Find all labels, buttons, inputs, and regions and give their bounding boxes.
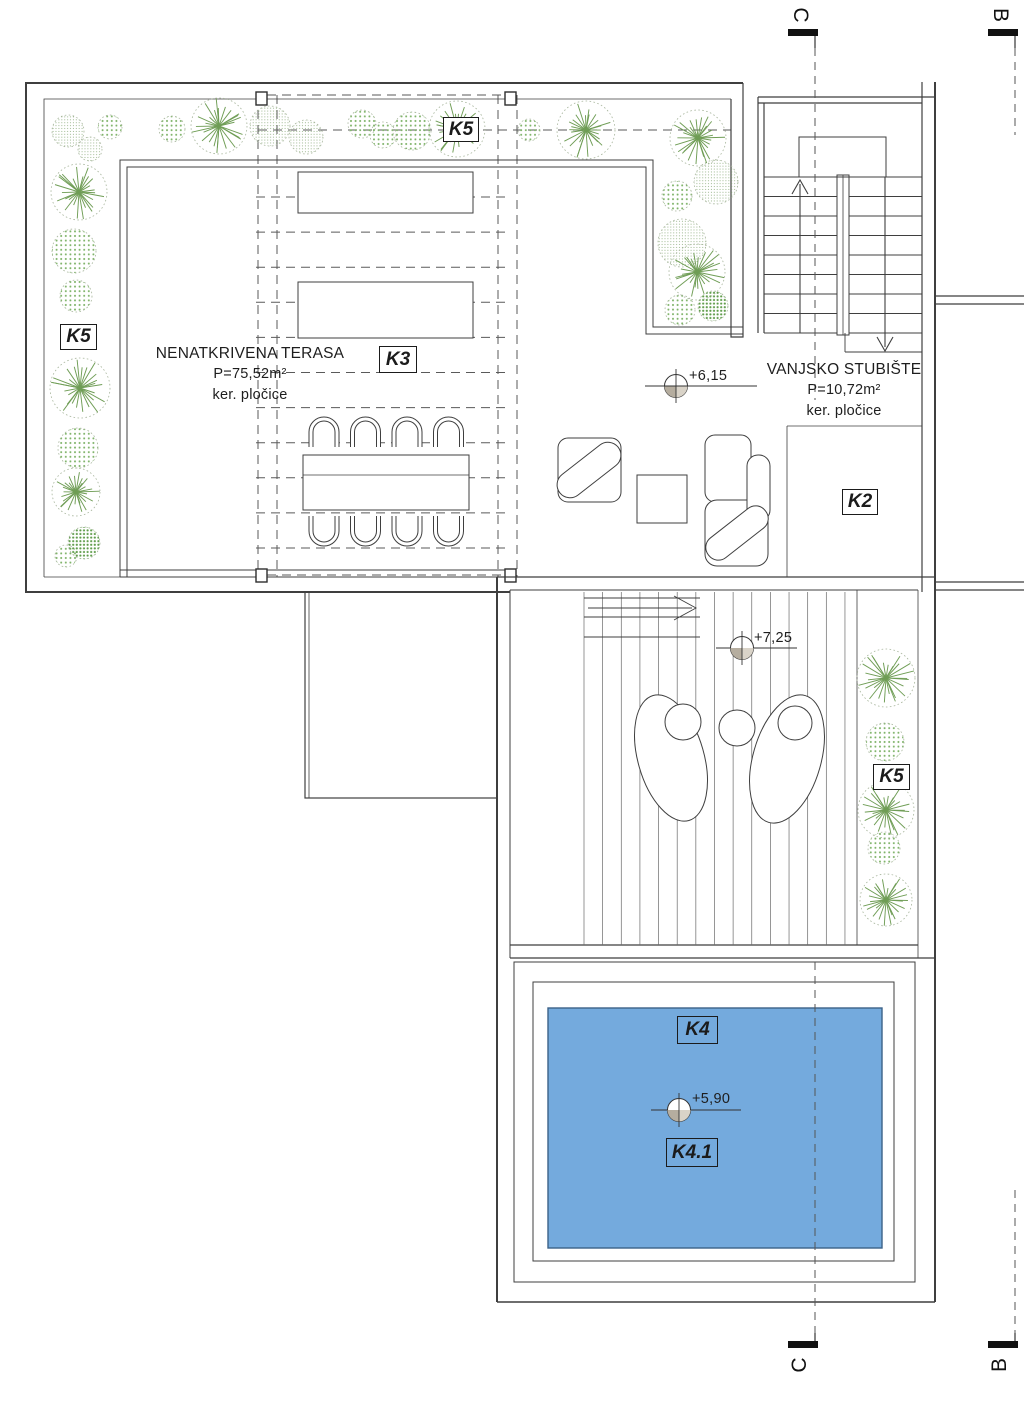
label-k3: K3: [379, 346, 417, 373]
planter-box: [298, 282, 473, 338]
side-table: [719, 710, 755, 746]
elevation-text-corridor: +6,15: [689, 368, 727, 384]
coffee-table: [637, 475, 687, 523]
dining-table: [303, 455, 469, 510]
section-line-b: [988, 29, 1018, 1348]
dining-set: [303, 417, 469, 546]
up-arrow: [792, 180, 808, 333]
sofa-seat: [705, 435, 751, 502]
planter-box: [298, 172, 473, 213]
pergola-planters: [298, 172, 473, 338]
section-label-b-top: B: [987, 1, 1013, 29]
lower-roof: [305, 592, 497, 798]
staircase-area: P=10,72m²: [758, 380, 930, 401]
sun-lounger-left: [621, 686, 720, 829]
sun-loungers: [621, 686, 838, 832]
lounger-pillow: [665, 704, 701, 740]
pool-water: [548, 1008, 882, 1248]
staircase-name: VANJSKO STUBIŠTE: [758, 359, 930, 380]
elevation-text-deck: +7,25: [754, 630, 792, 646]
section-label-b-bottom: B: [987, 1351, 1013, 1379]
elevation-text-pool: +5,90: [692, 1091, 730, 1107]
wooden-deck: [584, 592, 845, 945]
terrace-finish: ker. pločice: [140, 385, 360, 406]
deck-steps: [584, 596, 700, 637]
staircase-room-title: VANJSKO STUBIŠTE P=10,72m² ker. pločice: [758, 359, 930, 422]
pool: [514, 962, 915, 1282]
floor-plan-drawing: [0, 0, 1024, 1409]
label-k5-right: K5: [873, 764, 910, 790]
terrace-name: NENATKRIVENA TERASA: [140, 343, 360, 364]
label-k4-1: K4.1: [666, 1138, 718, 1167]
stair-landing: [799, 137, 886, 177]
terrace-area: P=75,52m²: [140, 364, 360, 385]
terrace-room-title: NENATKRIVENA TERASA P=75,52m² ker. ploči…: [140, 343, 360, 406]
label-k5-top: K5: [443, 117, 479, 142]
lounger-pillow: [778, 706, 812, 740]
staircase-finish: ker. pločice: [758, 401, 930, 422]
lounge-set: [552, 435, 773, 566]
label-k5-left: K5: [60, 324, 97, 350]
section-label-c-top: C: [787, 1, 813, 29]
section-label-c-bottom: C: [787, 1351, 813, 1379]
label-k4: K4: [677, 1016, 718, 1044]
floor-plan-sheet: K5 K5 K5 K3 K2 K4 K4.1 NENATKRIVENA TERA…: [0, 0, 1024, 1409]
down-arrow: [877, 177, 893, 351]
label-k2: K2: [842, 489, 878, 515]
